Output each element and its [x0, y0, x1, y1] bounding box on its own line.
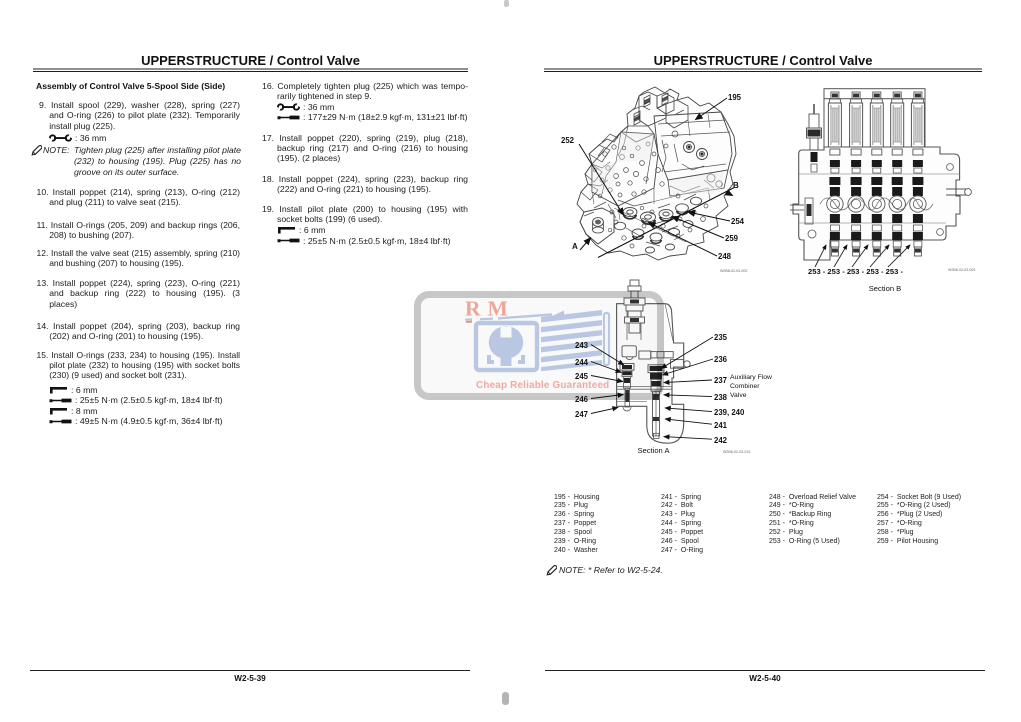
svg-text:Section B: Section B: [869, 284, 902, 293]
svg-text:241: 241: [714, 421, 728, 430]
svg-text:R: R: [465, 297, 481, 321]
svg-text:253 - 253 - 253 - 253 - 253 -: 253 - 253 - 253 - 253 - 253 -: [808, 267, 903, 276]
svg-text:Combiner: Combiner: [730, 383, 760, 390]
svg-text:237: 237: [714, 376, 727, 385]
svg-text:Section A: Section A: [637, 446, 670, 455]
svg-text:195: 195: [728, 93, 742, 102]
svg-text:Cheap Reliable Guaranteed: Cheap Reliable Guaranteed: [476, 380, 609, 391]
svg-text:239, 240: 239, 240: [714, 408, 745, 417]
svg-text:242: 242: [714, 436, 728, 445]
svg-text:Auxiliary Flow: Auxiliary Flow: [730, 374, 772, 381]
svg-text:252: 252: [561, 136, 575, 145]
svg-text:259: 259: [725, 234, 739, 243]
svg-text:B: B: [733, 181, 739, 190]
svg-text:238: 238: [714, 393, 728, 402]
svg-text:247: 247: [575, 410, 588, 419]
svg-text:254: 254: [731, 217, 745, 226]
svg-text:248: 248: [718, 252, 732, 261]
svg-text:Valve: Valve: [730, 392, 747, 399]
svg-text:W2B8-02-03-013: W2B8-02-03-013: [723, 450, 750, 454]
svg-text:W2B8-02-03-002: W2B8-02-03-002: [720, 269, 747, 273]
svg-text:A: A: [572, 242, 578, 251]
svg-text:W2B8-02-03-003: W2B8-02-03-003: [948, 268, 975, 272]
svg-text:235: 235: [714, 333, 728, 342]
svg-text:236: 236: [714, 355, 728, 364]
